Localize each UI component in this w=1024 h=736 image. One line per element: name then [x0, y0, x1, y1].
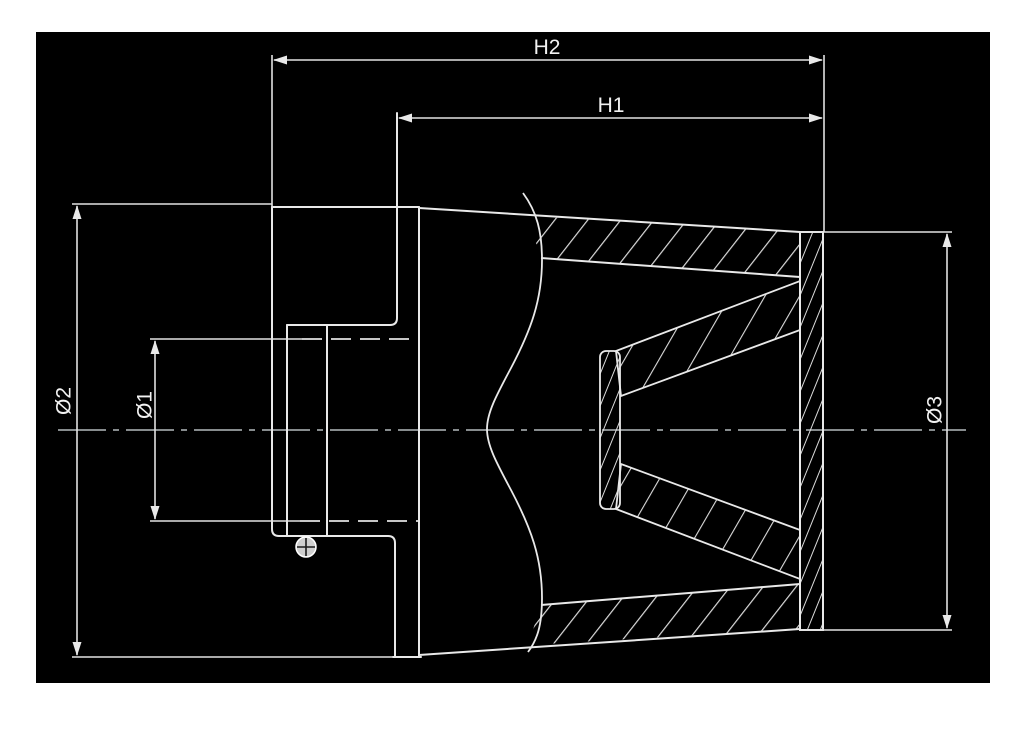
drawing-canvas [36, 32, 990, 683]
dia3-dimension-label: Ø3 [924, 396, 947, 424]
dia1-dimension-label: Ø1 [134, 391, 157, 419]
technical-drawing-svg: H2 H1 Ø2 Ø1 Ø3 [0, 0, 1024, 736]
inner-cone-tip [600, 351, 620, 509]
page: H2 H1 Ø2 Ø1 Ø3 [0, 0, 1024, 736]
screw-marker [296, 537, 316, 557]
h1-dimension-label: H1 [598, 94, 625, 117]
end-cap [800, 232, 823, 630]
dia2-dimension-label: Ø2 [53, 387, 76, 415]
h2-dimension-label: H2 [534, 36, 561, 59]
